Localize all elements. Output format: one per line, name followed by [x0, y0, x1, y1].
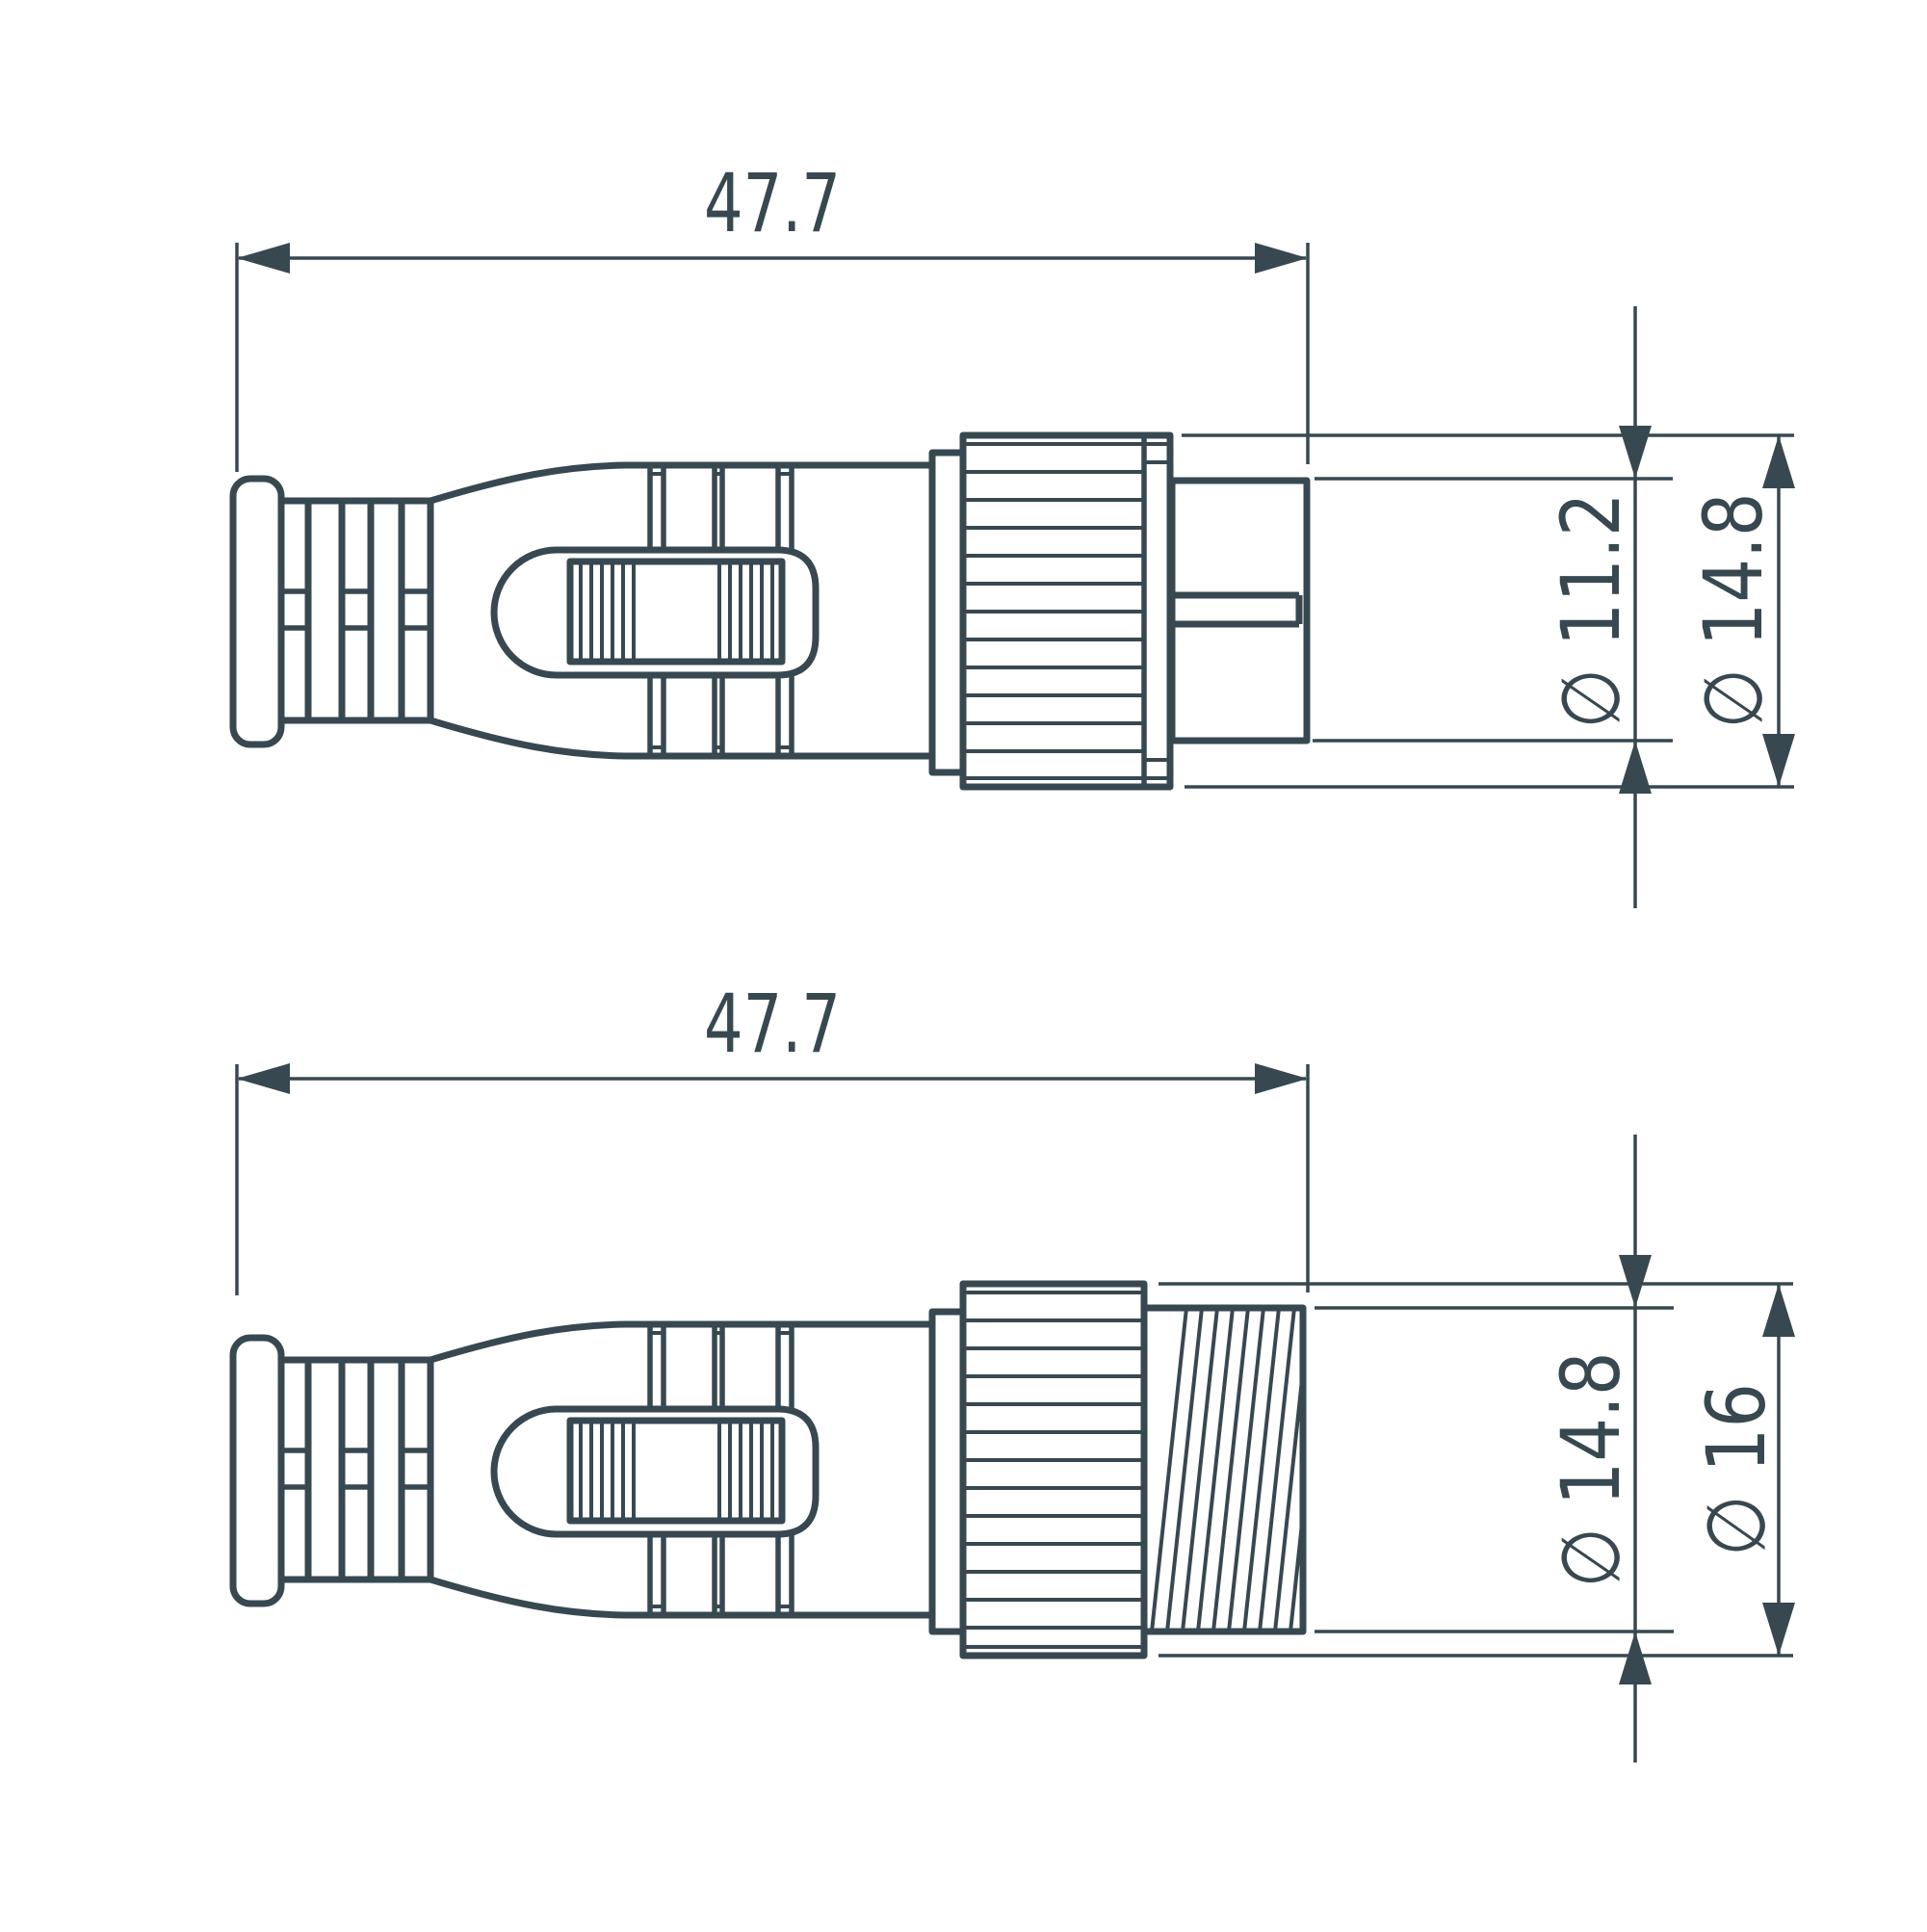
arrowhead-left: [237, 1063, 290, 1094]
dim-label-thread-diameter: ∅ 14.8: [1544, 1352, 1638, 1588]
arrowhead-top: [1619, 1255, 1652, 1308]
view-bottom: 47.7 ∅ 14.8 ∅ 16: [233, 977, 1795, 1762]
dimension-nut-diameter-top: ∅ 14.8: [1182, 435, 1795, 787]
dimension-nut-diameter-bottom: ∅ 16: [1159, 1284, 1795, 1656]
dim-label-length-top: 47.7: [704, 156, 841, 250]
thread-hatch: [1152, 1308, 1325, 1632]
connector-left-assembly-bottom: [233, 1312, 963, 1632]
knurl-ridges: [963, 444, 1144, 778]
arrowhead-right: [1255, 1063, 1308, 1094]
arrowhead-bottom: [1762, 1603, 1795, 1656]
male-pin-shroud: [1172, 481, 1307, 741]
arrowhead-right: [1255, 243, 1308, 274]
knurled-nut-bottom: [963, 1284, 1144, 1656]
arrowhead-top: [1762, 1284, 1795, 1337]
knurl-ridges: [963, 1292, 1144, 1647]
extension-lines: [237, 1064, 1308, 1295]
dimension-length-bottom: 47.7: [237, 977, 1308, 1295]
dim-label-pin-diameter: ∅ 11.2: [1544, 493, 1638, 729]
view-top: 47.7 ∅ 11.2 ∅ 14.8: [233, 156, 1795, 908]
drawing-sheet: 47.7 ∅ 11.2 ∅ 14.8: [0, 0, 1927, 1927]
arrowhead-bottom: [1619, 1632, 1652, 1684]
knurl-band-ticks: [1144, 444, 1170, 778]
dim-label-length-bottom: 47.7: [704, 977, 841, 1071]
dimension-length-top: 47.7: [237, 156, 1308, 472]
connector-left-assembly-top: [233, 453, 963, 772]
pin-shroud-body: [1172, 481, 1307, 741]
dim-label-nut-diameter-bottom: ∅ 16: [1689, 1383, 1784, 1556]
pin-shroud-slot: [1172, 595, 1299, 624]
arrowhead-left: [237, 243, 290, 274]
dimension-pin-diameter-top: ∅ 11.2: [1313, 306, 1673, 908]
knurled-nut-top: [963, 435, 1170, 787]
coupling-thread: [1144, 1308, 1325, 1632]
arrowhead-bottom: [1762, 734, 1795, 787]
arrowhead-top: [1762, 435, 1795, 488]
technical-drawing: 47.7 ∅ 11.2 ∅ 14.8: [0, 0, 1927, 1927]
dimension-thread-diameter-bottom: ∅ 14.8: [1315, 1135, 1674, 1762]
dim-label-nut-diameter-top: ∅ 14.8: [1686, 493, 1781, 729]
